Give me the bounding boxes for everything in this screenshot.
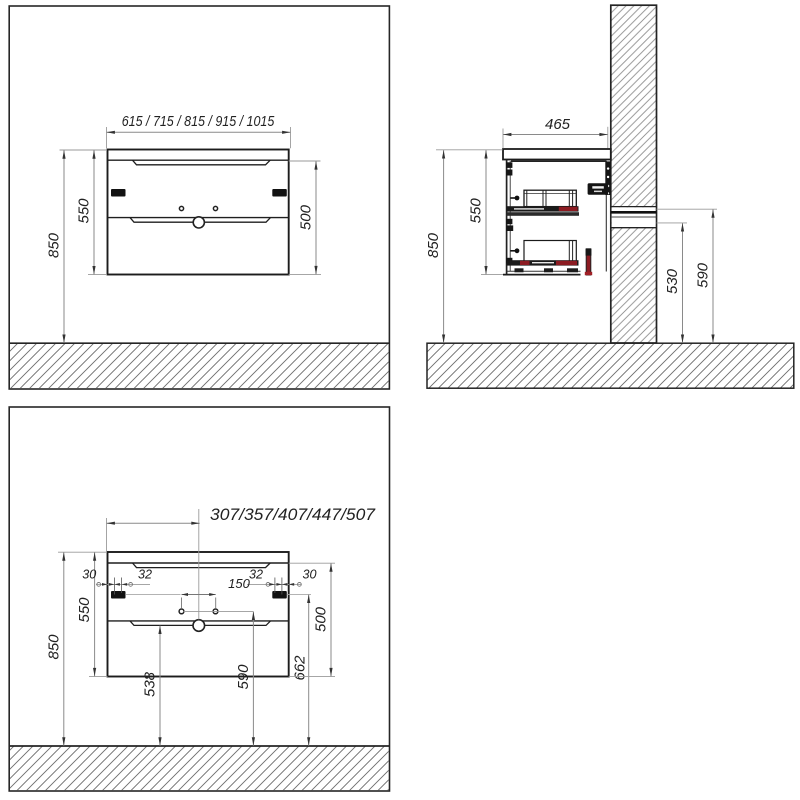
svg-text:30: 30 (302, 568, 316, 582)
svg-text:465: 465 (545, 116, 571, 133)
svg-text:550: 550 (76, 597, 93, 623)
svg-text:32: 32 (249, 567, 263, 581)
svg-text:590: 590 (235, 664, 252, 690)
svg-text:30: 30 (82, 568, 96, 582)
svg-text:538: 538 (142, 671, 159, 697)
svg-text:307/357/407/447/507: 307/357/407/447/507 (210, 506, 376, 524)
svg-text:615 / 715 / 815 / 915 / 1015: 615 / 715 / 815 / 915 / 1015 (122, 113, 275, 130)
svg-text:850: 850 (425, 232, 442, 258)
svg-text:850: 850 (45, 634, 62, 660)
svg-text:850: 850 (46, 232, 63, 258)
svg-text:150: 150 (228, 576, 250, 591)
svg-text:590: 590 (695, 262, 712, 288)
svg-text:500: 500 (298, 204, 315, 230)
svg-text:32: 32 (138, 567, 152, 581)
svg-text:530: 530 (664, 268, 681, 294)
svg-text:500: 500 (313, 606, 330, 632)
svg-text:550: 550 (468, 198, 485, 224)
svg-text:550: 550 (76, 198, 93, 224)
